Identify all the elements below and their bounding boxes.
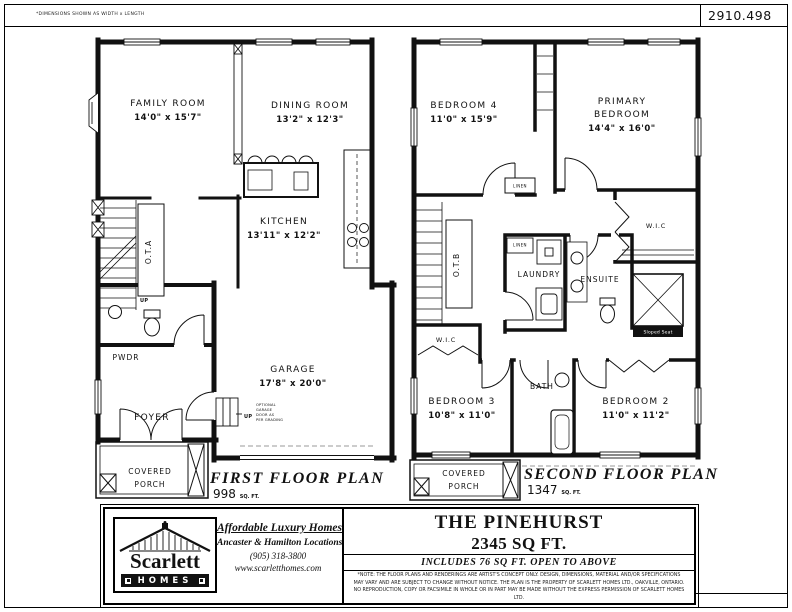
bedroom3-door [482, 360, 510, 388]
garage-entry-steps [216, 398, 242, 426]
porch-post [414, 478, 429, 495]
svg-text:PER GRADING: PER GRADING [256, 418, 283, 422]
family-room-label: FAMILY ROOM [130, 99, 206, 109]
porch-post [100, 474, 116, 492]
sink-icon [109, 306, 122, 319]
title-block-connector-line [694, 593, 788, 594]
wic-bedroom3-doors [418, 346, 478, 355]
model-row: THE PINEHURST 2345 SQ FT. [344, 509, 694, 555]
first-floor-area: 998 SQ. FT. [213, 487, 259, 501]
kitchen-counter [344, 150, 370, 268]
kitchen-dims: 13'11" x 12'2" [247, 231, 321, 241]
disclaimer-text: *NOTE: THE FLOOR PLANS AND RENDERINGS AR… [352, 572, 686, 602]
sink-icon [571, 252, 583, 264]
bedroom4-label: BEDROOM 4 [430, 101, 497, 111]
first-floor-area-value: 998 [213, 487, 236, 501]
bedroom4-dims: 11'0" x 15'9" [430, 115, 497, 125]
brand-name: Scarlett [130, 551, 200, 572]
second-floor-area-unit: SQ. FT. [561, 490, 580, 496]
svg-text:OPTIONAL: OPTIONAL [256, 403, 276, 407]
structural-post [234, 44, 242, 164]
primary-closet-chase [537, 56, 553, 110]
contact-block: Affordable Luxury Homes Ancaster & Hamil… [217, 522, 339, 573]
bedroom2-dims: 11'0" x 11'2" [602, 411, 669, 421]
garage-dims: 17'8" x 20'0" [259, 379, 326, 389]
ota-label: O.T.A [144, 240, 153, 264]
homes-bar: HOMES [121, 574, 209, 587]
family-room-dims: 14'0" x 15'7" [134, 113, 201, 123]
drawing-number-box: 2910.498 [700, 5, 792, 26]
linen-closet-hall: LINEN [505, 178, 535, 193]
phone-number: (905) 318-3800 [217, 551, 339, 561]
open-to-above-box: O.T.A [138, 204, 164, 296]
powder-fixtures [109, 306, 161, 337]
tagline: Affordable Luxury Homes [217, 522, 339, 534]
model-note-row: INCLUDES 76 SQ FT. OPEN TO ABOVE [344, 555, 694, 571]
first-floor-area-unit: SQ. FT. [240, 494, 259, 500]
vanity [567, 242, 587, 302]
covered-porch-label: COVERED [442, 469, 486, 478]
garage-door-note: OPTIONAL GARAGE DOOR AS PER GRADING [256, 403, 283, 422]
foyer-label: FOYER [134, 413, 170, 423]
primary-bedroom-label: BEDROOM [594, 110, 650, 120]
powder-door [174, 315, 204, 345]
laundry-fixtures [507, 238, 562, 320]
disclaimer-row: *NOTE: THE FLOOR PLANS AND RENDERINGS AR… [344, 571, 694, 603]
covered-porch-label: COVERED [128, 467, 172, 476]
linen-label: LINEN [513, 184, 527, 189]
up-label: UP [244, 414, 252, 420]
primary-door [565, 158, 597, 190]
bedroom2-label: BEDROOM 2 [602, 397, 669, 407]
dining-room-label: DINING ROOM [271, 101, 349, 111]
bedroom3-dims: 10'8" x 11'0" [428, 411, 495, 421]
porch-post [503, 462, 518, 498]
second-floor-area-value: 1347 [527, 483, 558, 497]
primary-bedroom-label: PRIMARY [598, 97, 647, 107]
bath-label: BATH [530, 382, 554, 391]
open-to-below-box: O.T.B [446, 220, 472, 308]
header-rule [4, 26, 787, 27]
stairs-up [100, 200, 136, 310]
otb-label: O.T.B [452, 253, 461, 277]
laundry-door [505, 292, 533, 320]
homes-label: HOMES [138, 576, 193, 586]
dining-room-dims: 13'2" x 12'3" [276, 115, 343, 125]
porch-post [188, 444, 204, 496]
scarlett-homes-logo: Scarlett HOMES [113, 517, 217, 593]
toilet-icon [555, 373, 569, 387]
bay-window [89, 93, 98, 133]
title-block-right: THE PINEHURST 2345 SQ FT. INCLUDES 76 SQ… [344, 509, 694, 603]
toilet-icon [600, 298, 615, 305]
first-floor-plan: O.T.A [88, 30, 398, 505]
bedroom3-label: BEDROOM 3 [428, 397, 495, 407]
bath-fixtures [551, 373, 573, 454]
website: www.scarletthomes.com [217, 563, 339, 573]
model-area: 2345 SQ FT. [344, 534, 694, 554]
covered-porch-label: PORCH [134, 480, 165, 489]
drawing-sheet: *DIMENSIONS SHOWN AS WIDTH x LENGTH 2910… [0, 0, 792, 612]
title-block-left: Scarlett HOMES Affordable Luxury Homes A… [105, 509, 344, 603]
up-label: UP [140, 298, 148, 304]
dimensions-note: *DIMENSIONS SHOWN AS WIDTH x LENGTH [36, 12, 144, 17]
second-floor-title: SECOND FLOOR PLAN [524, 466, 718, 484]
wic-label: W.I.C [436, 336, 456, 344]
garage-man-door [186, 392, 214, 420]
bedroom2-door [578, 360, 606, 388]
first-floor-wall-openings [120, 341, 374, 462]
shower-sloped-seat: Sloped Seat [633, 274, 683, 337]
laundry-label: LAUNDRY [518, 270, 561, 279]
model-note: INCLUDES 76 SQ FT. OPEN TO ABOVE [421, 557, 617, 568]
kitchen-label: KITCHEN [260, 217, 308, 227]
title-block: Scarlett HOMES Affordable Luxury Homes A… [103, 507, 696, 605]
locations: Ancaster & Hamilton Locations [217, 538, 339, 548]
toilet-icon [144, 310, 160, 318]
ornament-square-icon [199, 578, 205, 584]
kitchen-island [244, 156, 318, 197]
covered-porch-structure [410, 460, 520, 500]
wic-label: W.I.C [646, 222, 666, 230]
ensuite-label: ENSUITE [580, 275, 619, 284]
ornament-square-icon [125, 578, 131, 584]
linen-label: LINEN [513, 243, 527, 248]
powder-label: PWDR [113, 353, 140, 362]
second-floor-area: 1347 SQ. FT. [527, 483, 581, 497]
model-name: THE PINEHURST [344, 512, 694, 534]
sloped-seat-label: Sloped Seat [643, 330, 672, 336]
covered-porch-label: PORCH [448, 482, 479, 491]
first-floor-title: FIRST FLOOR PLAN [210, 470, 384, 488]
stairs-down [416, 202, 442, 325]
svg-text:GARAGE: GARAGE [256, 408, 273, 412]
svg-text:DOOR AS: DOOR AS [256, 413, 275, 417]
second-floor-plan: O.T.B LINEN Sloped Seat [402, 30, 702, 505]
primary-bedroom-dims: 14'4" x 16'0" [588, 124, 655, 134]
stove-icon [348, 224, 369, 247]
drawing-number: 2910.498 [708, 8, 772, 23]
garage-label: GARAGE [270, 365, 315, 375]
